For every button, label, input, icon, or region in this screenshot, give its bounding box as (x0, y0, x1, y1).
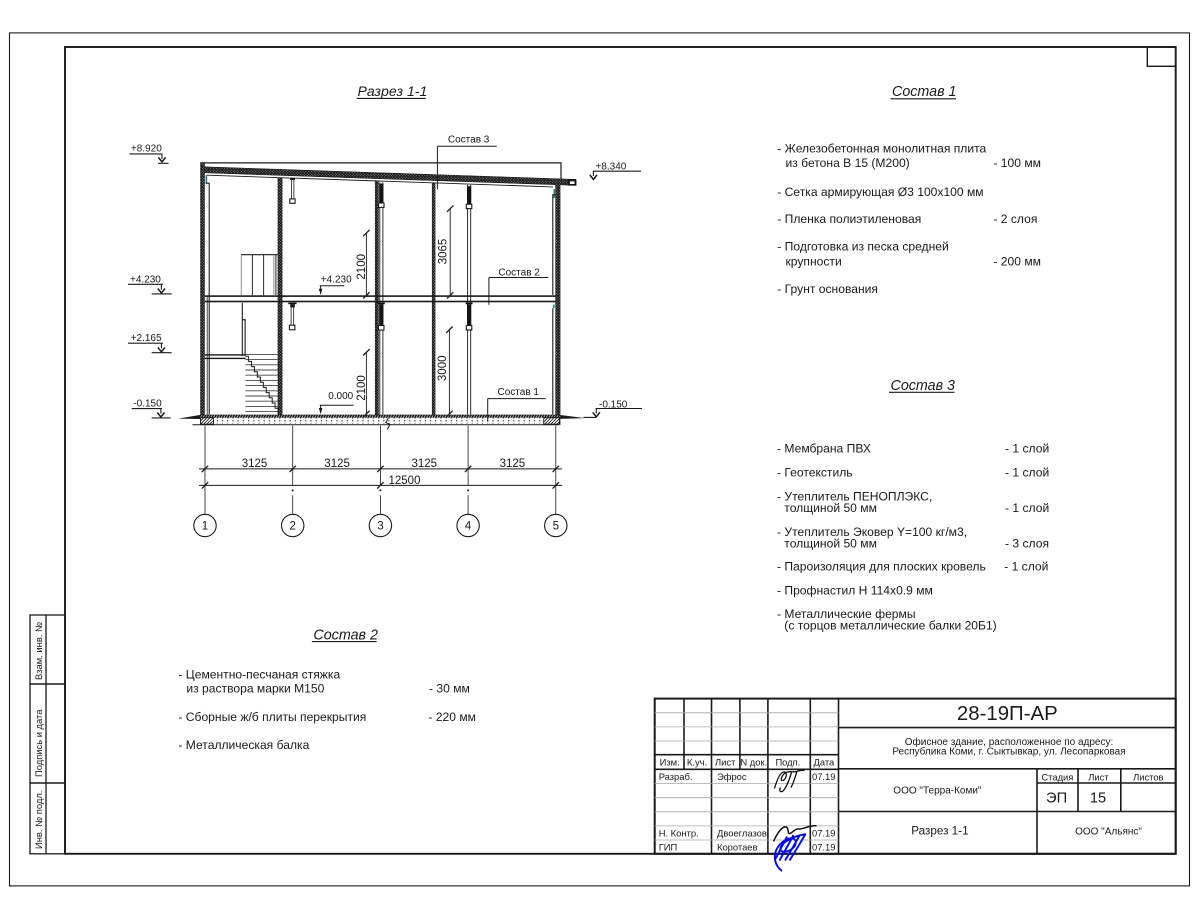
svg-text:Коротаев: Коротаев (717, 841, 758, 852)
svg-text:N док.: N док. (740, 757, 767, 768)
svg-text:ООО "Альянс": ООО "Альянс" (1075, 826, 1142, 837)
svg-text:ЭП: ЭП (1046, 790, 1067, 806)
svg-text:Разрез 1-1: Разрез 1-1 (911, 824, 968, 837)
svg-text:3: 3 (377, 521, 383, 533)
svg-text:Подп.: Подп. (775, 757, 800, 768)
svg-text:- Подготовка из песка средней: - Подготовка из песка средней (777, 239, 948, 253)
svg-text:3125: 3125 (242, 458, 268, 470)
svg-text:28-19П-АР: 28-19П-АР (957, 703, 1058, 725)
svg-text:1: 1 (202, 521, 208, 533)
svg-text:Подпись и дата: Подпись и дата (33, 709, 44, 777)
svg-text:крупности: крупности (786, 254, 842, 268)
svg-text:ГИП: ГИП (659, 841, 678, 852)
svg-text:2100: 2100 (356, 375, 368, 401)
svg-text:Двоеглазов: Двоеглазов (717, 827, 767, 838)
svg-text:К.уч.: К.уч. (687, 757, 707, 768)
svg-text:- Сетка армирующая Ø3 100х100: - Сетка армирующая Ø3 100х100 мм (777, 185, 983, 199)
svg-text:Эфрос: Эфрос (717, 771, 747, 782)
svg-text:- 1 слой: - 1 слой (1004, 559, 1048, 573)
svg-text:- 1 слой: - 1 слой (1005, 441, 1049, 455)
svg-text:0.000: 0.000 (328, 391, 353, 402)
svg-text:3065: 3065 (438, 239, 450, 265)
svg-text:Состав 2: Состав 2 (313, 627, 378, 643)
svg-text:- Пароизоляция для плоских кро: - Пароизоляция для плоских кровель (777, 559, 986, 573)
svg-text:- Металлическая балка: - Металлическая балка (178, 738, 309, 752)
svg-text:- Железобетонная монолитная п: - Железобетонная монолитная плита (777, 141, 986, 155)
svg-text:Состав 1: Состав 1 (892, 84, 957, 100)
svg-text:Дата: Дата (814, 757, 836, 768)
svg-text:Состав 1: Состав 1 (498, 387, 540, 398)
svg-text:- Грунт основания: - Грунт основания (777, 282, 878, 296)
svg-text:+4.230: +4.230 (130, 274, 161, 285)
svg-text:12500: 12500 (389, 475, 421, 487)
svg-text:3125: 3125 (412, 458, 438, 470)
svg-text:- 1 слой: - 1 слой (1005, 466, 1049, 480)
svg-text:(с торцов металлические балки: (с торцов металлические балки 20Б1) (784, 618, 996, 632)
svg-text:- 30 мм: - 30 мм (429, 681, 470, 695)
svg-text:15: 15 (1090, 790, 1106, 806)
svg-text:ООО "Терра-Коми": ООО "Терра-Коми" (893, 785, 982, 796)
svg-text:4: 4 (465, 521, 472, 533)
svg-text:Инв. № подл.: Инв. № подл. (33, 791, 44, 849)
svg-text:3125: 3125 (324, 458, 350, 470)
svg-text:Стадия: Стадия (1041, 771, 1073, 782)
svg-text:- 1 слой: - 1 слой (1005, 501, 1049, 515)
svg-text:3000: 3000 (437, 356, 449, 382)
svg-text:- Сборные ж/б плиты перекрытия: - Сборные ж/б плиты перекрытия (178, 710, 366, 724)
svg-text:из бетона В 15 (М200): из бетона В 15 (М200) (786, 156, 910, 170)
svg-text:Разрез 1-1: Разрез 1-1 (358, 83, 428, 99)
svg-text:- 200 мм: - 200 мм (993, 254, 1041, 268)
svg-text:- Пленка полиэтиленовая: - Пленка полиэтиленовая (777, 212, 921, 226)
svg-text:из раствора марки М150: из раствора марки М150 (186, 681, 324, 695)
svg-text:Листов: Листов (1133, 771, 1163, 782)
svg-text:- Профнастил Н 114х0.9 мм: - Профнастил Н 114х0.9 мм (777, 584, 933, 598)
svg-text:- 2 слоя: - 2 слоя (993, 212, 1037, 226)
svg-text:+8.920: +8.920 (131, 144, 162, 155)
svg-text:07.19: 07.19 (812, 827, 835, 838)
svg-text:07.19: 07.19 (812, 841, 835, 852)
svg-text:2: 2 (289, 521, 295, 533)
svg-text:Лист: Лист (1088, 771, 1109, 782)
svg-text:Состав 2: Состав 2 (498, 267, 540, 278)
svg-text:толщиной 50 мм: толщиной 50 мм (784, 501, 877, 515)
svg-text:- Цементно-песчаная стяжка: - Цементно-песчаная стяжка (178, 668, 340, 682)
svg-text:- 100 мм: - 100 мм (993, 156, 1041, 170)
svg-text:Лист: Лист (715, 757, 736, 768)
svg-text:Взам. инв. №: Взам. инв. № (33, 622, 44, 680)
svg-text:Н. Контр.: Н. Контр. (659, 827, 699, 838)
svg-text:-0.150: -0.150 (133, 399, 162, 410)
svg-text:- 220 мм: - 220 мм (428, 710, 476, 724)
svg-text:Разраб.: Разраб. (659, 771, 693, 782)
svg-text:07.19: 07.19 (812, 771, 835, 782)
svg-text:5: 5 (553, 521, 559, 533)
svg-text:+2.165: +2.165 (131, 333, 162, 344)
svg-text:- Мембрана ПВХ: - Мембрана ПВХ (777, 441, 871, 455)
svg-text:Республика Коми, г. Сыктывкар,: Республика Коми, г. Сыктывкар, ул. Лесоп… (892, 745, 1125, 757)
svg-text:- 3 слоя: - 3 слоя (1005, 536, 1049, 550)
svg-text:2100: 2100 (356, 254, 368, 280)
svg-text:- Геотекстиль: - Геотекстиль (777, 466, 853, 480)
svg-text:+4.230: +4.230 (321, 274, 352, 285)
svg-text:Состав 3: Состав 3 (891, 378, 956, 394)
svg-text:3125: 3125 (500, 458, 526, 470)
svg-text:толщиной 50 мм: толщиной 50 мм (784, 536, 877, 550)
svg-text:Состав 3: Состав 3 (448, 135, 490, 146)
svg-text:Изм.: Изм. (660, 757, 680, 768)
